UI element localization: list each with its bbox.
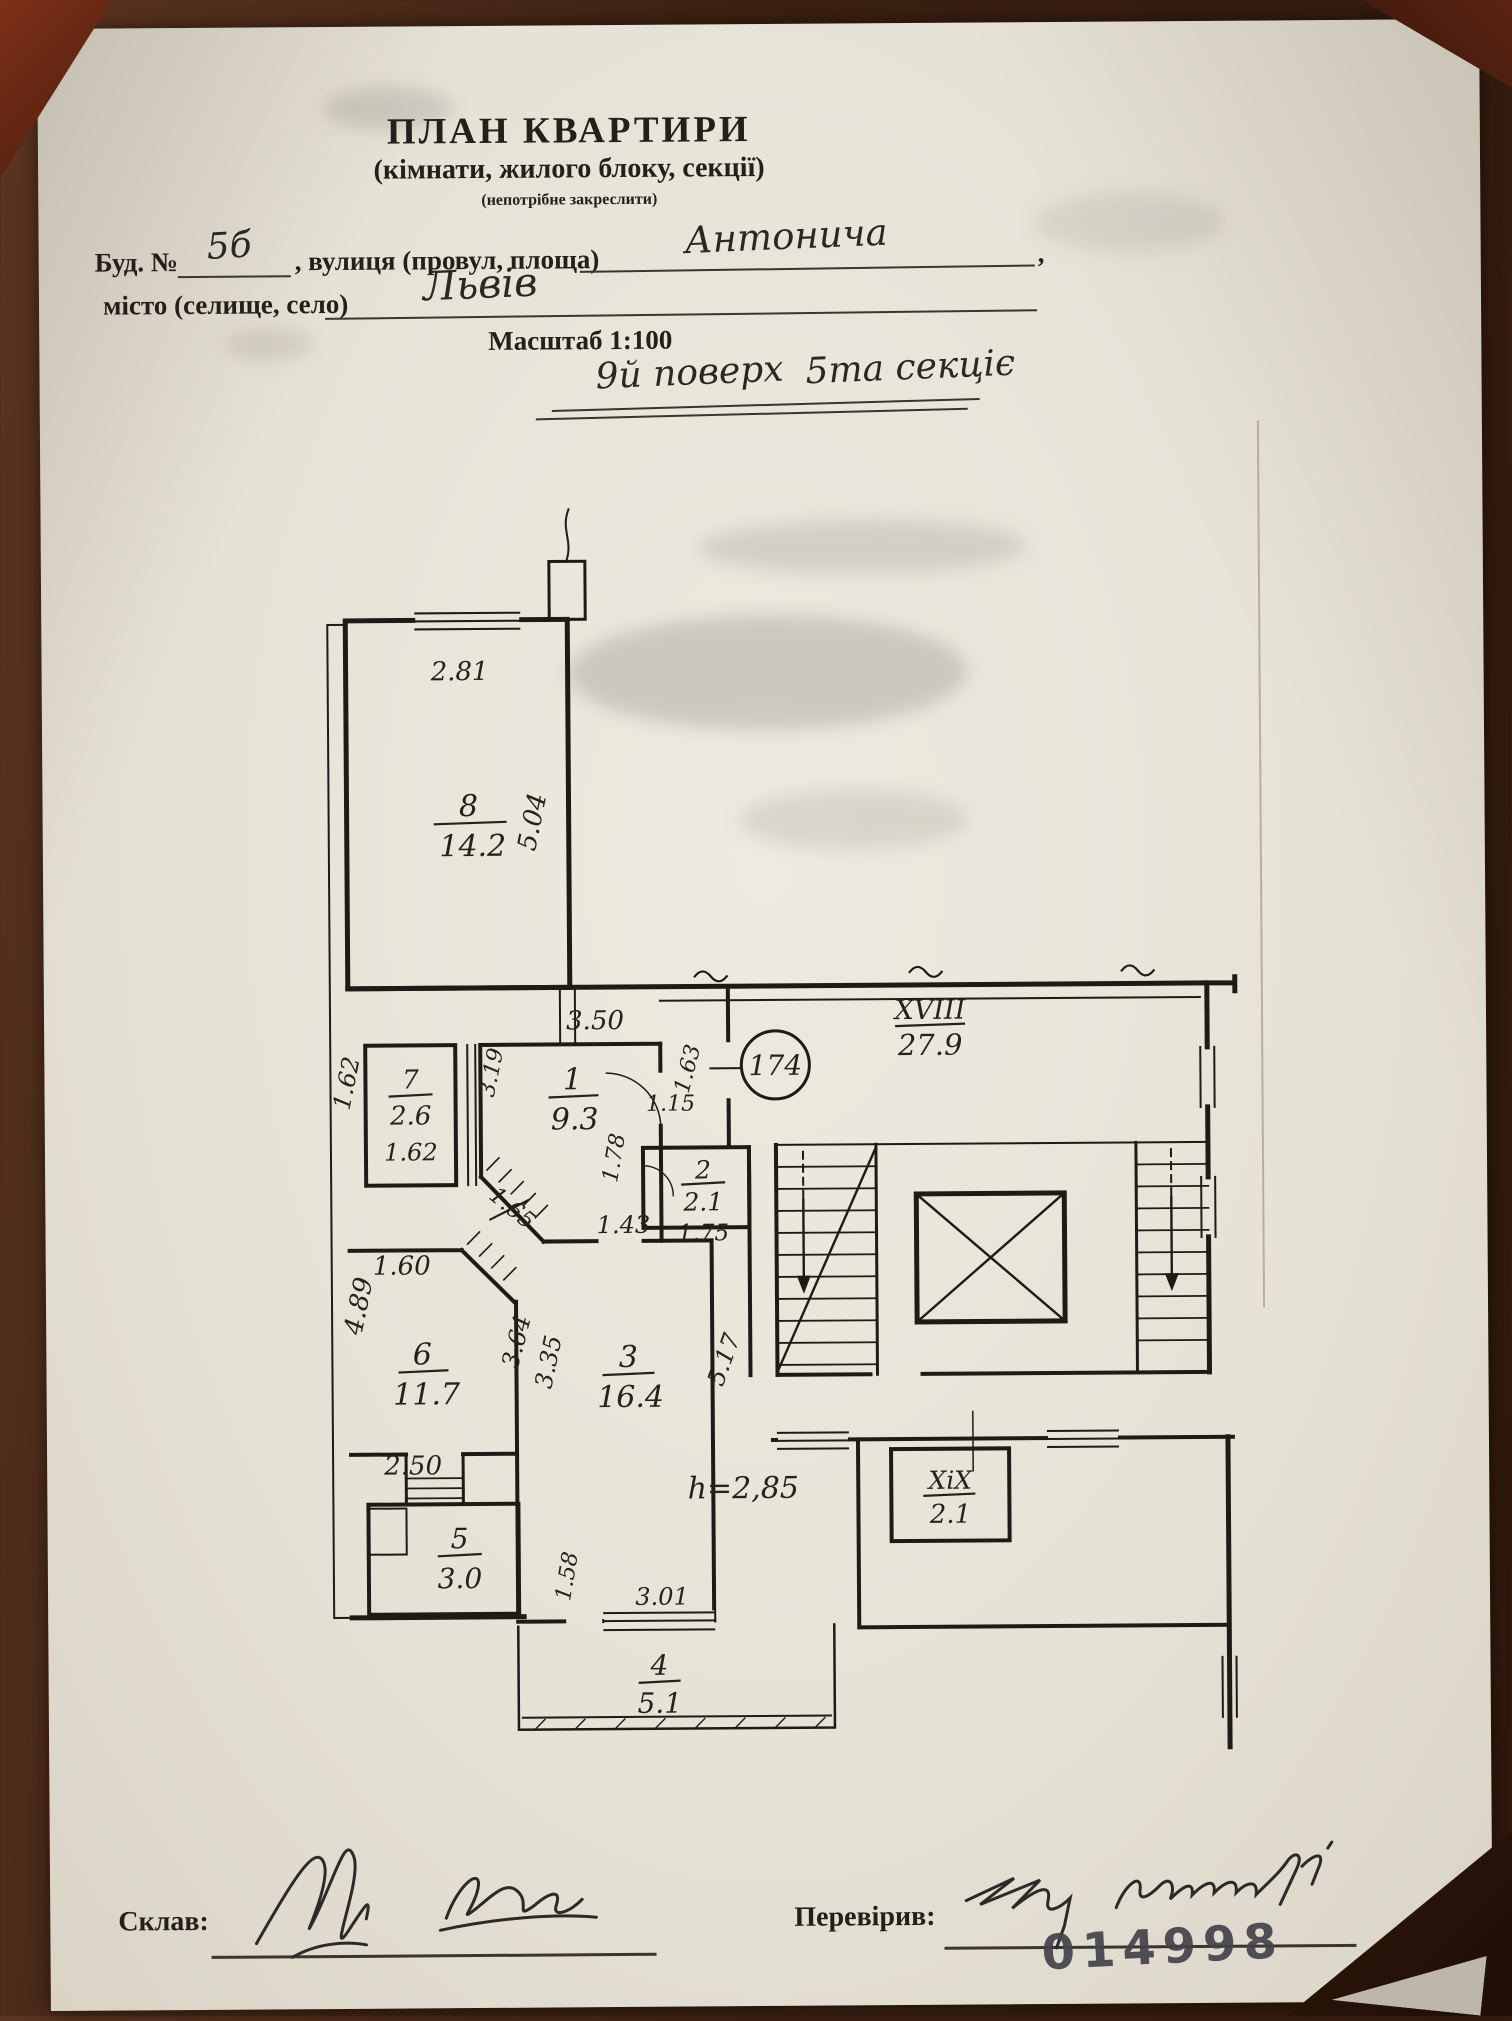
room8-area: 14.2	[439, 829, 506, 864]
dim-2-50: 2.50	[383, 1451, 442, 1481]
city-underline	[325, 309, 1037, 320]
street-underline	[580, 265, 1035, 273]
dim-1-63: 1.63	[670, 1042, 707, 1096]
section-note-handwritten: 5та секціє	[805, 343, 1016, 393]
room5-area: 3.0	[438, 1562, 483, 1595]
dim-3-64: 3.64	[496, 1312, 537, 1371]
room-labels: 8 14.2 7 2.6 1 9.3 2 2.1 XVIII 27.9 6 11…	[387, 786, 975, 1722]
building-underline	[178, 275, 291, 278]
city-value-handwritten: Львів	[422, 260, 538, 311]
street-value-handwritten: Антонича	[684, 211, 889, 262]
room3-area: 16.4	[597, 1380, 664, 1415]
room1-number: 1	[563, 1062, 582, 1097]
hall18-number: XVIII	[893, 995, 967, 1027]
dim-2-81: 2.81	[430, 657, 489, 687]
room2-number: 2	[694, 1155, 711, 1184]
floor-note-handwritten: 9й поверх	[595, 349, 785, 398]
room2-area: 2.1	[682, 1187, 723, 1216]
dim-h-2-85: h=2,85	[688, 1471, 800, 1507]
apartment-circle-number: 174	[749, 1049, 803, 1082]
closet19-number: XiX	[926, 1466, 973, 1495]
strike-note: (непотрібне закреслити)	[0, 187, 1144, 213]
room6-area: 11.7	[393, 1377, 461, 1412]
room3-number: 3	[619, 1340, 638, 1375]
dim-4-89: 4.89	[338, 1275, 379, 1339]
made-by-signatures	[196, 1821, 687, 1974]
room1-area: 9.3	[551, 1102, 599, 1137]
page-subtitle: (кімнати, жилого блоку, секції)	[0, 149, 1144, 189]
dim-1-62-left: 1.62	[328, 1054, 366, 1112]
room8-number: 8	[459, 789, 478, 824]
dim-1-15: 1.15	[646, 1091, 695, 1116]
page-title: ПЛАН КВАРТИРИ	[0, 105, 1144, 156]
dim-1-60: 1.60	[373, 1251, 431, 1281]
checked-by-label: Перевірив:	[794, 1901, 935, 1934]
building-number-handwritten: 5б	[205, 224, 252, 268]
fraction-bars	[387, 819, 977, 1685]
dim-1-43: 1.43	[597, 1211, 651, 1239]
room4-area: 5.1	[637, 1687, 682, 1720]
dim-3-35: 3.35	[530, 1333, 568, 1391]
street-tail-comma: ,	[1038, 238, 1045, 269]
dim-5-17: 5.17	[702, 1329, 747, 1389]
dim-1-75: 1.75	[678, 1220, 729, 1246]
dim-3-50: 3.50	[566, 1006, 624, 1036]
room5-number: 5	[451, 1522, 469, 1555]
room7-area: 2.6	[389, 1101, 432, 1131]
dim-1-62-bottom: 1.62	[384, 1138, 438, 1166]
city-label: місто (селище, село)	[103, 289, 348, 322]
dim-3-01: 3.01	[635, 1583, 689, 1611]
dim-1-58: 1.58	[551, 1550, 584, 1602]
closet19-area: 2.1	[929, 1500, 972, 1530]
building-label: Буд. №	[95, 247, 178, 279]
document-sheet: ПЛАН КВАРТИРИ (кімнати, жилого блоку, се…	[37, 19, 1493, 2011]
floor-plan: 8 14.2 7 2.6 1 9.3 2 2.1 XVIII 27.9 6 11…	[266, 406, 1276, 1803]
room6-number: 6	[413, 1337, 432, 1372]
dim-5-04: 5.04	[512, 791, 553, 854]
hall18-area: 27.9	[897, 1028, 963, 1062]
dim-1-78: 1.78	[598, 1132, 631, 1184]
photo-of-document: { "header": { "title": "ПЛАН КВАРТИРИ", …	[0, 0, 1512, 2016]
room7-number: 7	[402, 1065, 419, 1095]
room4-number: 4	[650, 1649, 669, 1682]
